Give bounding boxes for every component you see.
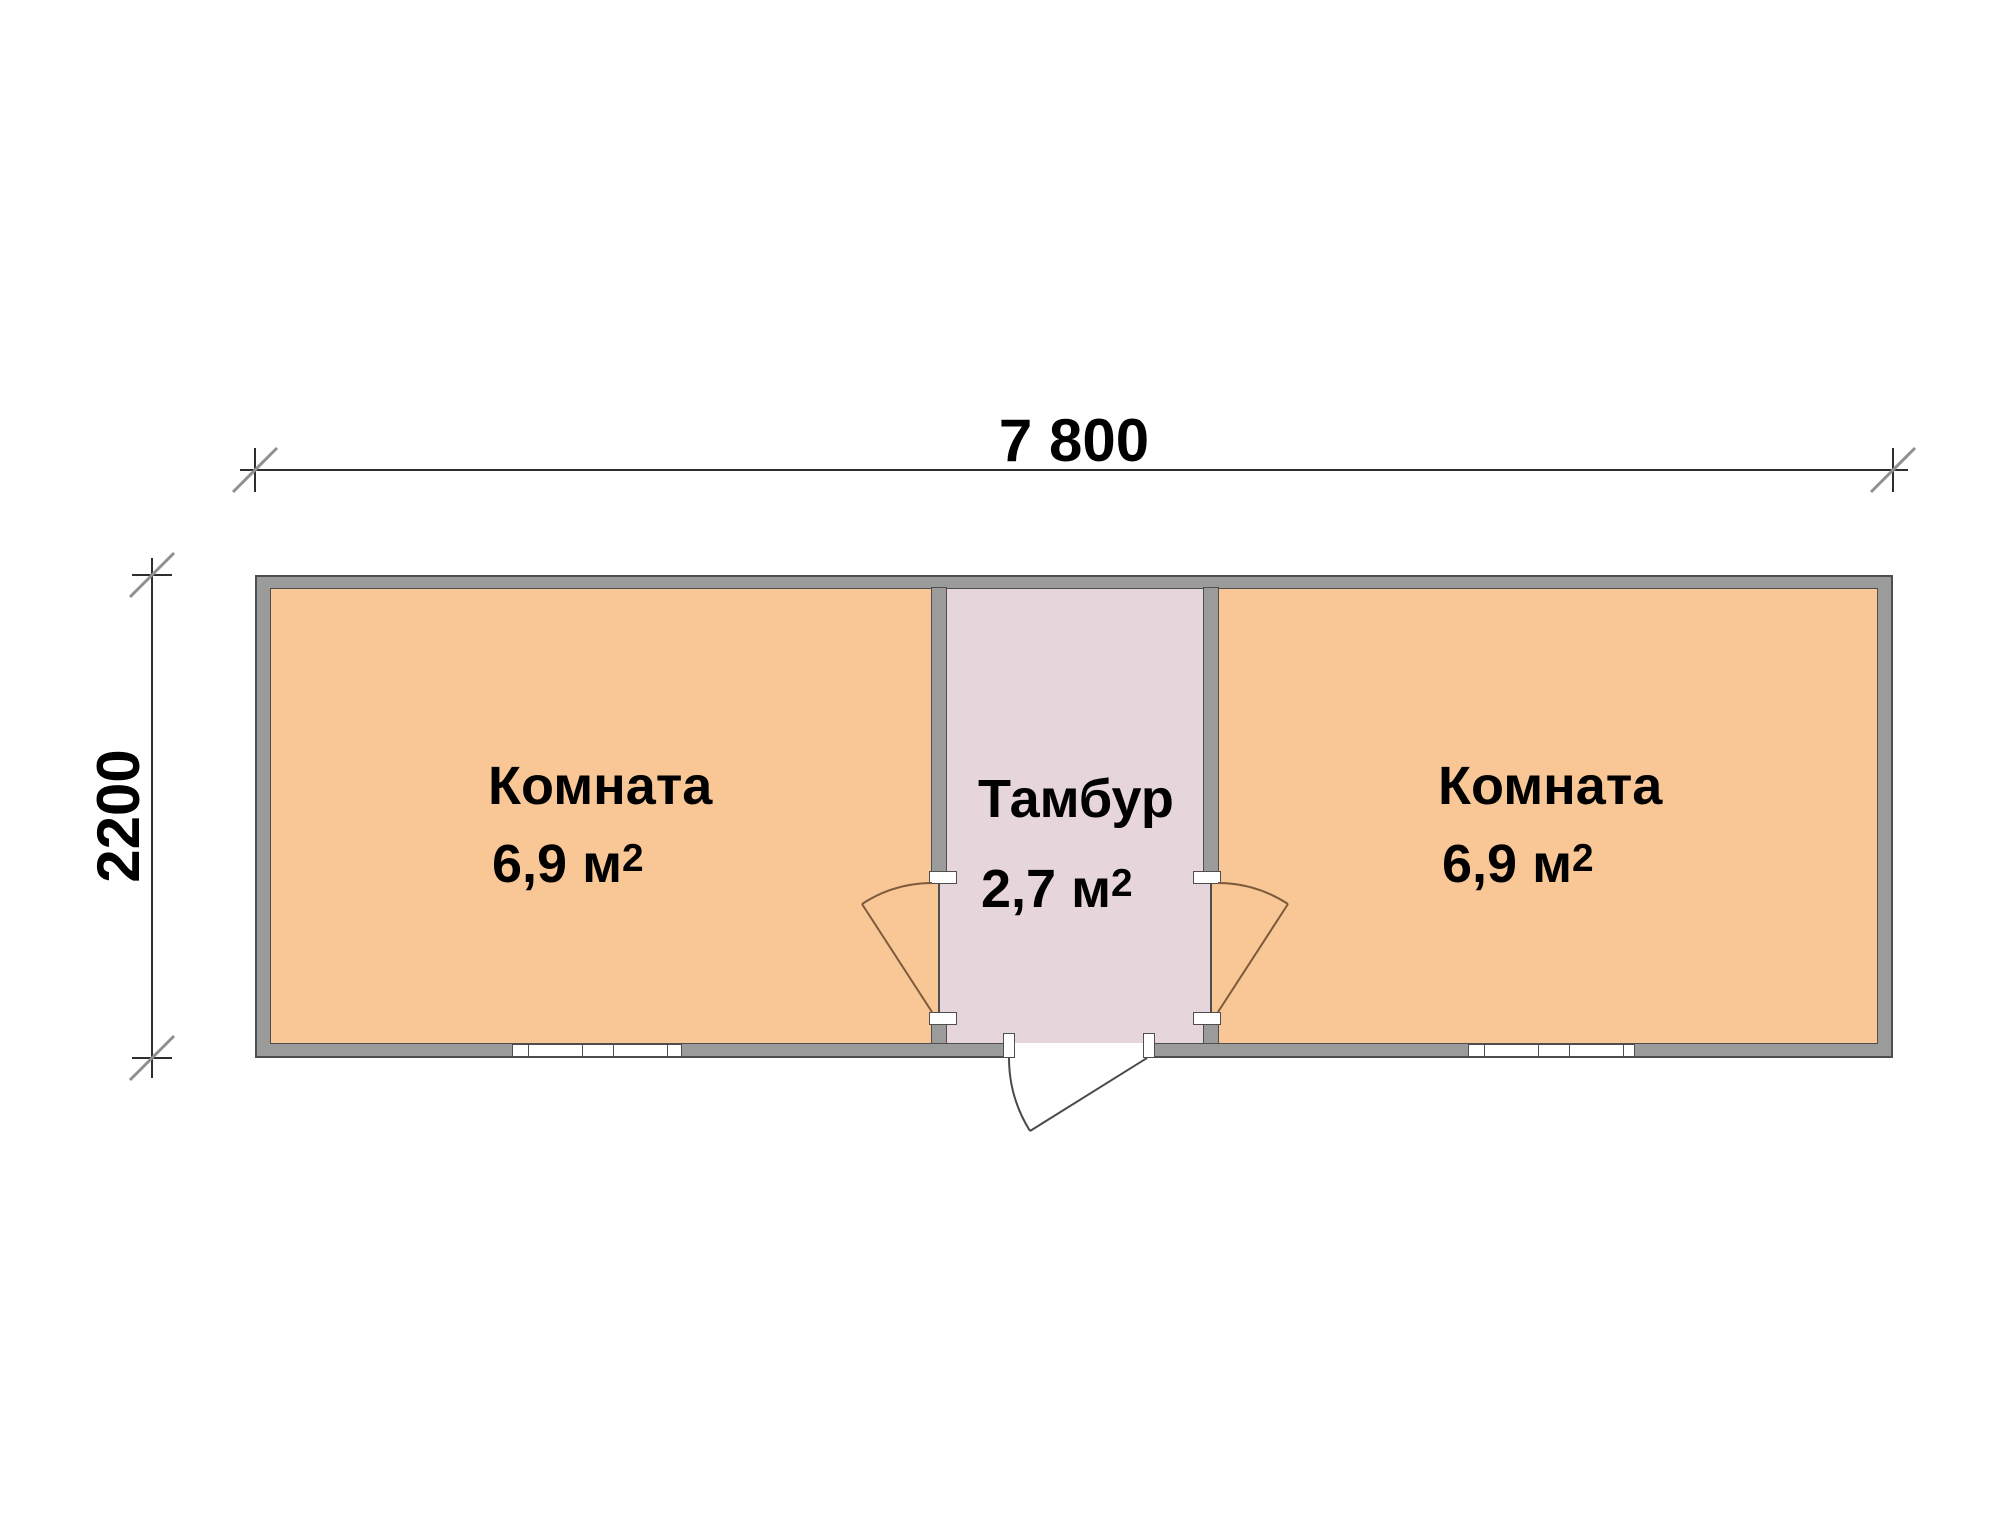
- window-right: [1468, 1044, 1635, 1057]
- window-pane-divider: [1569, 1045, 1570, 1056]
- window-pane-divider: [582, 1045, 583, 1056]
- window-pane-divider: [613, 1045, 614, 1056]
- window-pane-divider: [528, 1045, 529, 1056]
- window-pane-divider: [1623, 1045, 1624, 1056]
- room-left-area: 6,9 м2: [492, 837, 644, 891]
- exterior-door-swing: [1009, 1058, 1147, 1131]
- dimension-width-label: 7 800: [999, 411, 1149, 471]
- room-left-name: Комната: [488, 759, 712, 813]
- vestibule-area-value: 2,7 м: [981, 859, 1111, 919]
- door-jamb: [1003, 1033, 1015, 1058]
- room-right-area-sup: 2: [1572, 837, 1594, 880]
- room-left-floor: [270, 588, 939, 1044]
- vestibule-area: 2,7 м2: [981, 862, 1133, 916]
- room-right-area-value: 6,9 м: [1442, 834, 1572, 894]
- window-pane-divider: [667, 1045, 668, 1056]
- door-jamb: [929, 1012, 957, 1025]
- window-pane-divider: [1538, 1045, 1539, 1056]
- exterior-door-opening: [1014, 1043, 1143, 1060]
- interior-wall-left-top-segment: [931, 587, 947, 872]
- door-jamb: [929, 871, 957, 884]
- door-jamb: [1143, 1033, 1155, 1058]
- room-left-area-value: 6,9 м: [492, 834, 622, 894]
- room-right-area: 6,9 м2: [1442, 837, 1594, 891]
- interior-wall-right-top-segment: [1203, 587, 1219, 872]
- door-jamb: [1193, 871, 1221, 884]
- floor-plan: Комната 6,9 м2 Тамбур 2,7 м2 Комната 6,9…: [0, 0, 2000, 1538]
- vestibule-name: Тамбур: [978, 772, 1174, 826]
- door-jamb: [1193, 1012, 1221, 1025]
- dimension-height-label: 2200: [89, 749, 149, 882]
- room-right-floor: [1211, 588, 1878, 1044]
- window-left: [512, 1044, 682, 1057]
- window-pane-divider: [1484, 1045, 1485, 1056]
- room-right-name: Комната: [1438, 759, 1662, 813]
- room-left-area-sup: 2: [622, 837, 644, 880]
- vestibule-area-sup: 2: [1111, 862, 1133, 905]
